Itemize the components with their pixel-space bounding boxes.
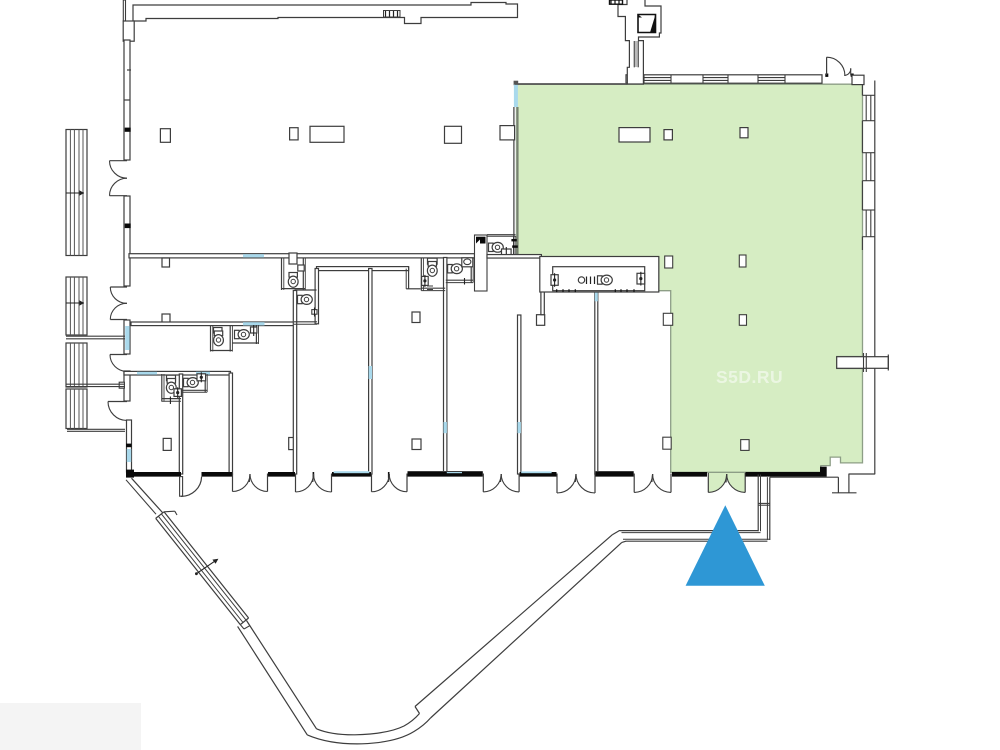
svg-text:S5D.RU: S5D.RU — [716, 367, 783, 387]
